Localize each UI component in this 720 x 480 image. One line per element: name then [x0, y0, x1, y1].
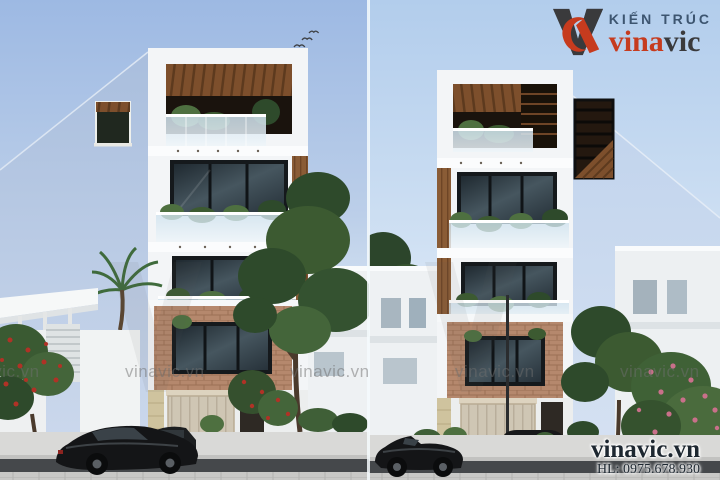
roof-terrace-pergola	[166, 64, 292, 146]
render-view-right	[369, 0, 720, 480]
logo-tagline: KIẾN TRÚC	[609, 12, 712, 26]
logo-wordmark-vina: vina	[609, 25, 664, 58]
logo-wordmark: vinavic	[609, 27, 701, 57]
watermark-text: vinavic.vn	[125, 362, 205, 382]
watermark-text: vinavic.vn	[455, 362, 535, 382]
roof-terrace-pergola	[453, 84, 557, 152]
wall-louver-panel	[575, 100, 613, 178]
architectural-render-collage: vinavic.vn vinavic.vn vinavic.vn vinavic…	[0, 0, 720, 480]
panel-divider	[367, 0, 370, 480]
contact-hotline: HL: 0975.678.930	[591, 462, 700, 478]
vinavic-logo: KIẾN TRÚC vinavic	[549, 6, 712, 58]
logo-wordmark-vic: vic	[664, 25, 701, 58]
logo-text: KIẾN TRÚC vinavic	[609, 6, 712, 57]
watermark-text: vinavic.vn	[290, 362, 370, 382]
neighbor-house-left	[369, 266, 439, 440]
vinavic-logo-mark-icon	[549, 6, 607, 58]
contact-block: vinavic.vn HL: 0975.678.930	[591, 437, 700, 478]
render-view-left	[0, 0, 369, 480]
watermark-text: vinavic.vn	[620, 362, 700, 382]
contact-website: vinavic.vn	[591, 437, 700, 462]
watermark-text: vinavic.vn	[0, 362, 40, 382]
